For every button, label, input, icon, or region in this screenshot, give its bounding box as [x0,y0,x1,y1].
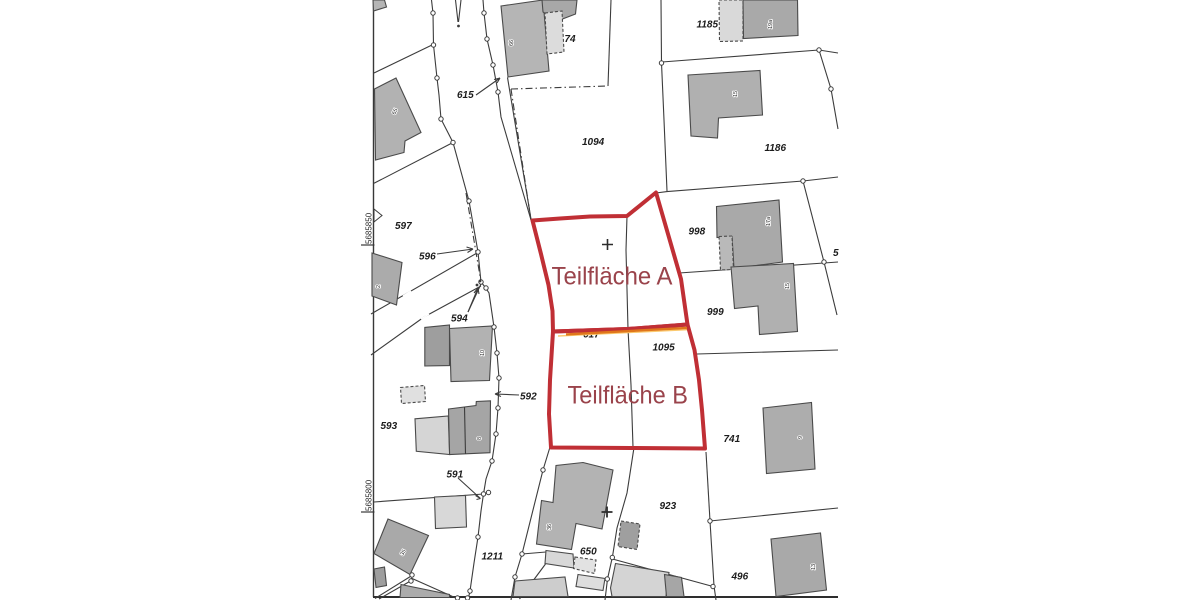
svg-text:597: 597 [395,221,412,232]
svg-text:9: 9 [798,436,804,439]
svg-text:8: 8 [477,437,483,440]
svg-text:15: 15 [785,283,791,289]
svg-text:5685800: 5685800 [365,479,374,511]
svg-text:1186: 1186 [765,143,787,154]
svg-text:13: 13 [811,564,817,570]
svg-text:650: 650 [580,547,597,558]
svg-text:1094: 1094 [582,137,605,148]
svg-text:596: 596 [419,252,436,263]
svg-text:5685850: 5685850 [365,212,374,244]
svg-text:2: 2 [376,285,382,288]
svg-text:10: 10 [480,350,486,356]
svg-text:923: 923 [660,501,677,512]
svg-text:36: 36 [547,524,553,530]
svg-text:Teilfläche B: Teilfläche B [568,382,689,410]
svg-text:615: 615 [457,90,474,101]
svg-text:999: 999 [707,307,724,318]
svg-text:594: 594 [451,314,468,325]
svg-text:1095: 1095 [653,343,676,354]
svg-text:741: 741 [724,434,741,445]
svg-text:5: 5 [833,248,839,259]
svg-text:591: 591 [447,470,464,481]
svg-text:998: 998 [689,227,706,238]
svg-text:1211: 1211 [482,552,504,563]
svg-text:Teilfläche A: Teilfläche A [552,263,673,291]
svg-text:1185: 1185 [697,20,719,31]
svg-text:592: 592 [520,392,537,403]
svg-text:593: 593 [381,421,398,432]
svg-text:17a: 17a [766,216,772,226]
svg-text:74: 74 [565,34,577,45]
svg-text:66: 66 [509,40,515,46]
svg-text:15: 15 [733,91,739,97]
svg-text:19a: 19a [768,19,774,29]
svg-text:496: 496 [731,572,749,583]
